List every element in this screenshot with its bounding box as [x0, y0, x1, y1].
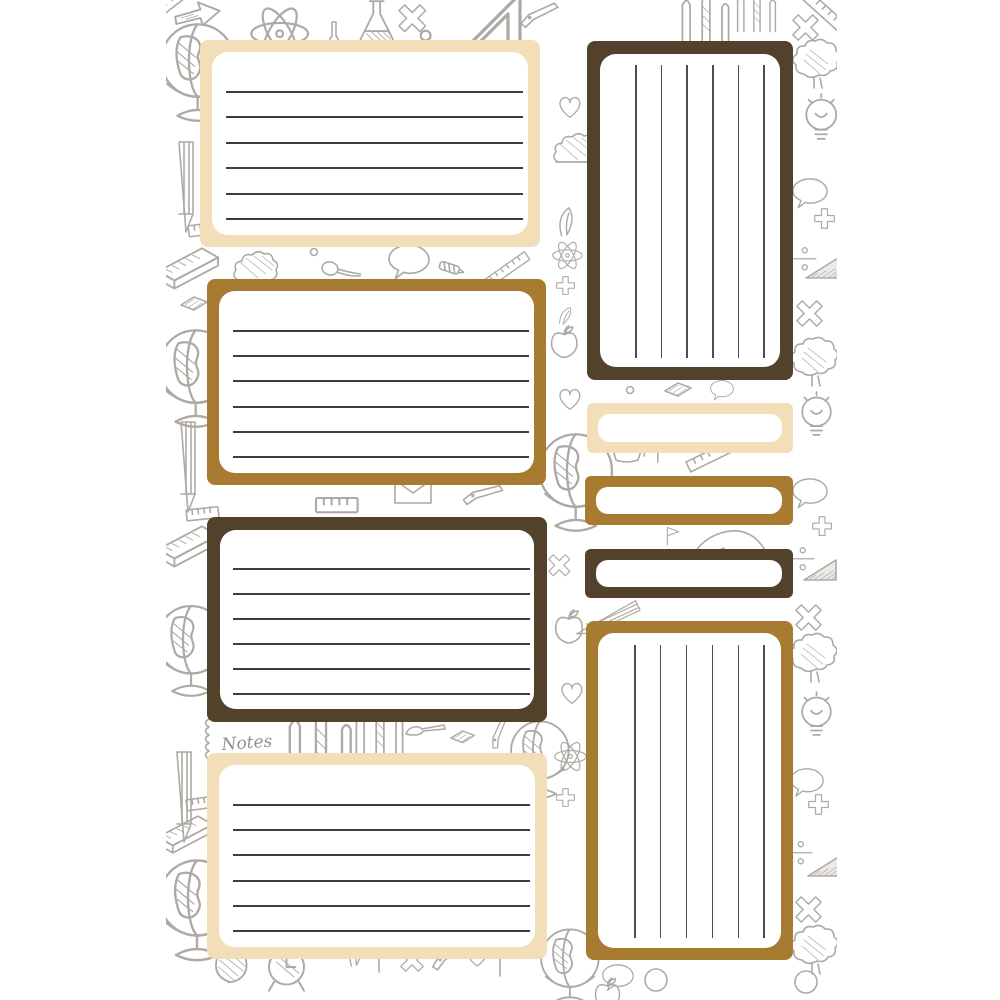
light-bulb-icon — [802, 392, 831, 435]
atom-icon — [553, 240, 582, 271]
eraser-icon — [665, 383, 691, 396]
light-bulb-icon — [802, 692, 831, 735]
triangle-icon — [806, 258, 837, 278]
notes-script-label: Notes — [220, 731, 273, 755]
pencil-icon — [181, 422, 195, 512]
circle-icon — [795, 971, 817, 993]
speech-bubble-icon — [793, 479, 827, 508]
flag-icon — [667, 527, 678, 545]
speech-bubble-icon — [711, 381, 734, 400]
plus-icon — [815, 209, 835, 229]
x-mark-icon — [796, 897, 821, 922]
triangle-icon — [808, 856, 837, 876]
x-mark-icon — [549, 555, 570, 576]
screw-icon — [439, 261, 465, 276]
note-card-3 — [207, 517, 547, 722]
division-icon — [792, 548, 814, 570]
pen-icon — [518, 3, 560, 29]
apple-icon — [556, 610, 583, 643]
plus-icon — [557, 277, 575, 295]
tree-icon — [791, 337, 837, 386]
ruled-lines — [226, 91, 523, 220]
paintbrush-icon — [406, 725, 445, 735]
light-bulb-icon — [806, 94, 836, 139]
pen-icon — [462, 485, 504, 504]
ruler-icon — [316, 498, 358, 512]
label-bar-2 — [585, 476, 793, 525]
label-bar-1 — [587, 403, 793, 453]
leaf-icon — [560, 208, 572, 236]
ruled-lines — [233, 568, 530, 695]
speech-bubble-icon — [791, 769, 823, 796]
heart-icon — [560, 390, 580, 410]
speech-bubble-icon — [793, 179, 827, 208]
plus-icon — [809, 795, 829, 815]
dot-icon — [627, 387, 634, 394]
x-mark-icon — [796, 605, 821, 630]
bush-icon — [234, 252, 278, 280]
ruled-lines — [634, 645, 765, 938]
eraser-icon — [451, 731, 474, 743]
ruled-lines — [233, 804, 530, 932]
plus-icon — [557, 789, 575, 807]
speech-bubble-icon — [389, 245, 429, 279]
sticker-sheet: Notes — [0, 0, 1000, 1000]
x-mark-icon — [793, 15, 818, 40]
arrow-icon — [175, 2, 219, 25]
eraser-icon — [181, 297, 207, 310]
x-mark-icon — [399, 5, 426, 32]
ruled-lines — [233, 330, 529, 458]
label-bar-2-writing-area — [596, 487, 782, 514]
x-mark-icon — [797, 301, 822, 326]
note-card-1 — [200, 40, 540, 247]
heart-icon — [562, 684, 582, 704]
pencil-icon — [179, 142, 193, 232]
note-card-2 — [207, 279, 546, 485]
apple-icon — [552, 326, 577, 357]
tree-icon — [791, 925, 837, 974]
leaf-icon — [558, 306, 572, 326]
fence-posts-icon — [738, 0, 776, 32]
tree-icon — [793, 39, 837, 88]
note-card-4 — [207, 753, 547, 959]
label-bar-3-writing-area — [596, 560, 782, 587]
circle-icon — [645, 969, 667, 991]
division-icon — [790, 842, 812, 864]
fence-posts-icon — [682, 0, 728, 42]
plus-icon — [813, 517, 832, 536]
ruled-lines — [635, 65, 765, 358]
tall-card-1 — [587, 41, 793, 380]
triangle-icon — [804, 560, 836, 580]
tree-icon — [790, 633, 837, 682]
label-bar-3 — [585, 549, 793, 598]
label-bar-1-writing-area — [598, 414, 782, 442]
book-icon — [166, 816, 213, 853]
ruler-icon — [795, 0, 837, 31]
atom-icon — [555, 740, 587, 773]
division-icon — [794, 248, 816, 270]
tall-card-2 — [586, 621, 793, 960]
heart-icon — [560, 98, 580, 118]
dot-icon — [311, 249, 318, 256]
